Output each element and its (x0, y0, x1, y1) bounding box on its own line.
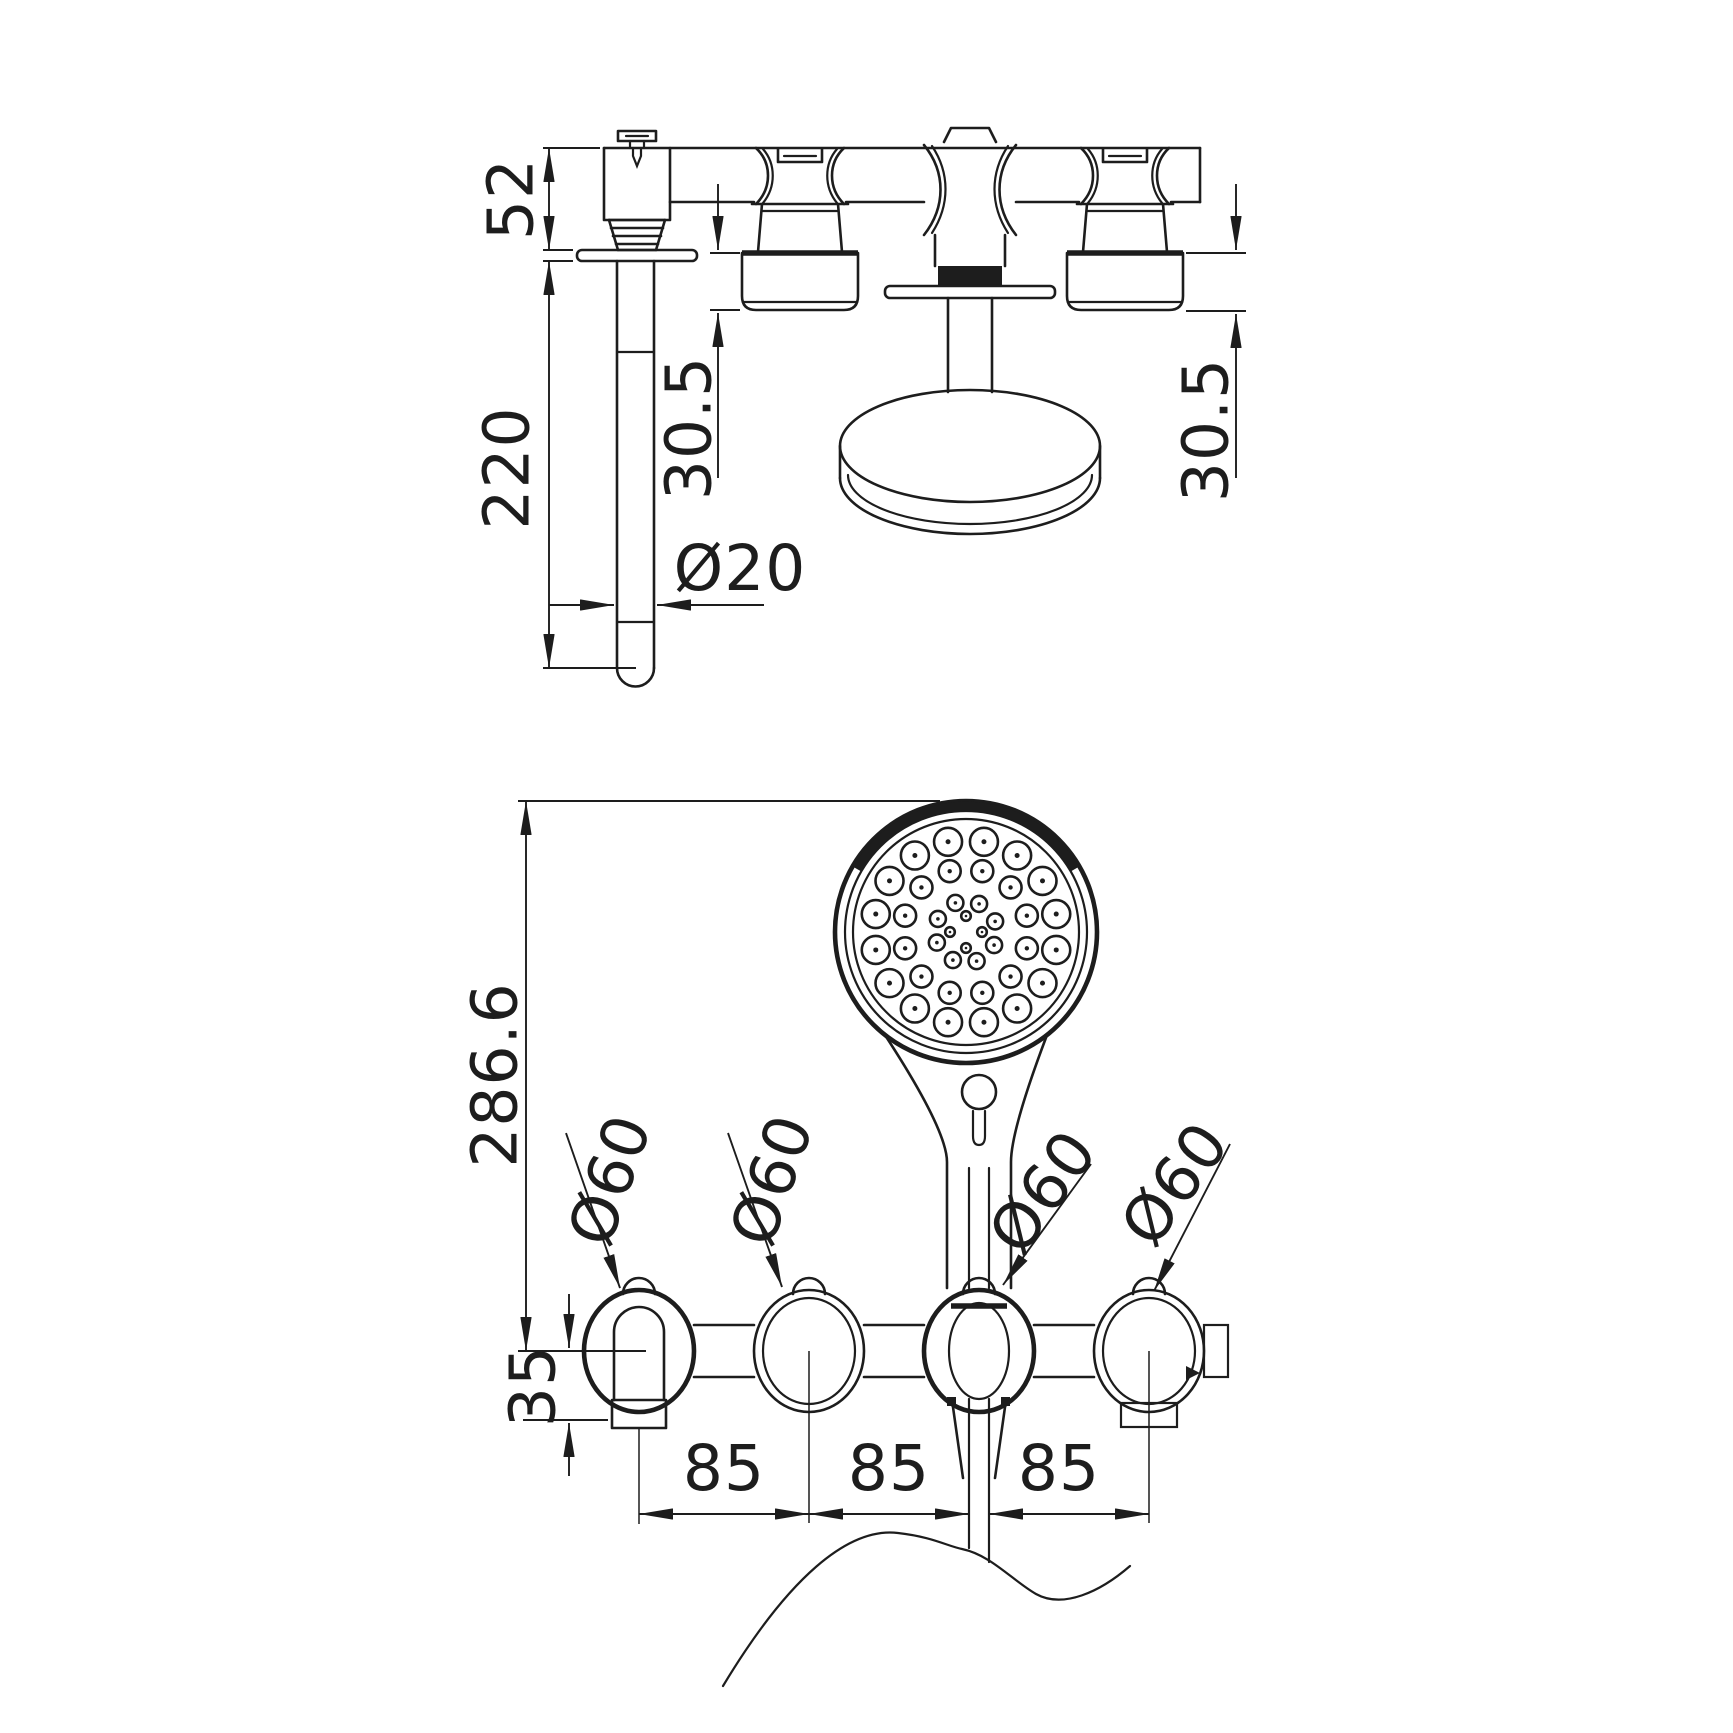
threaded-collar (938, 266, 1002, 286)
dim-label-d60-knob3: Ø60 (974, 1117, 1111, 1267)
wall-flange (577, 250, 697, 261)
dim-handle-depth-left: 30.5 (653, 184, 741, 500)
side-view: 52 220 Ø20 30.5 30.5 (471, 128, 1247, 687)
dim-knob-diameters: Ø60 Ø60 Ø60 Ø60 (554, 1105, 1244, 1291)
handshower-head (835, 801, 1097, 1063)
dim-label-d60-knob4: Ø60 (1106, 1109, 1243, 1259)
handshower-cradle-side (840, 235, 1100, 534)
knob-1-spout (584, 1278, 694, 1428)
pipe-connector (752, 148, 848, 204)
spout-tip (617, 668, 654, 687)
head-disc-top (840, 390, 1100, 502)
dim-label-d60-knob1: Ø60 (554, 1105, 666, 1254)
dim-label-30-5-left: 30.5 (653, 356, 726, 500)
mode-button (962, 1075, 996, 1109)
dim-label-30-5-right: 30.5 (1170, 358, 1243, 502)
head-shadow-arc (857, 806, 1075, 869)
dim-handle-depth-right: 30.5 (1170, 184, 1247, 502)
technical-drawing-page: 52 220 Ø20 30.5 30.5 (0, 0, 1733, 1733)
dim-label-286-6: 286.6 (459, 982, 532, 1167)
dim-label-d20: Ø20 (674, 532, 807, 605)
dim-spout-length: 220 (471, 261, 637, 668)
button-slot (973, 1111, 985, 1145)
cradle-flange (885, 286, 1055, 298)
front-view: 286.6 35 85 85 85 Ø60 Ø60 Ø60 (459, 801, 1244, 1686)
right-handle-side (1067, 204, 1183, 310)
shower-hose (969, 1399, 989, 1562)
pipe-connector (1077, 148, 1173, 204)
dim-spacings: 85 85 85 (639, 1428, 1149, 1524)
dim-overall-height: 286.6 (459, 801, 941, 1351)
dim-label-d60-knob2: Ø60 (716, 1105, 828, 1254)
break-wave-line (723, 1533, 1130, 1686)
pipe-connector (924, 128, 1016, 235)
dim-label-85-center: 85 (848, 1432, 930, 1505)
dim-spout-diameter: Ø20 (549, 532, 806, 605)
dim-label-35: 35 (497, 1345, 570, 1427)
knob-3-cradle (924, 1278, 1034, 1562)
dim-label-52: 52 (475, 158, 548, 240)
dim-label-220: 220 (471, 406, 544, 529)
left-handle-side (742, 204, 858, 310)
dim-label-85-left: 85 (683, 1432, 765, 1505)
knob-4 (1094, 1278, 1228, 1523)
mixer-dimension-drawing: 52 220 Ø20 30.5 30.5 (0, 0, 1733, 1733)
dim-spout-offset: 52 (475, 148, 601, 250)
dim-label-85-right: 85 (1018, 1432, 1100, 1505)
diverter-tab (1204, 1325, 1228, 1377)
spray-nozzles (862, 828, 1070, 1036)
